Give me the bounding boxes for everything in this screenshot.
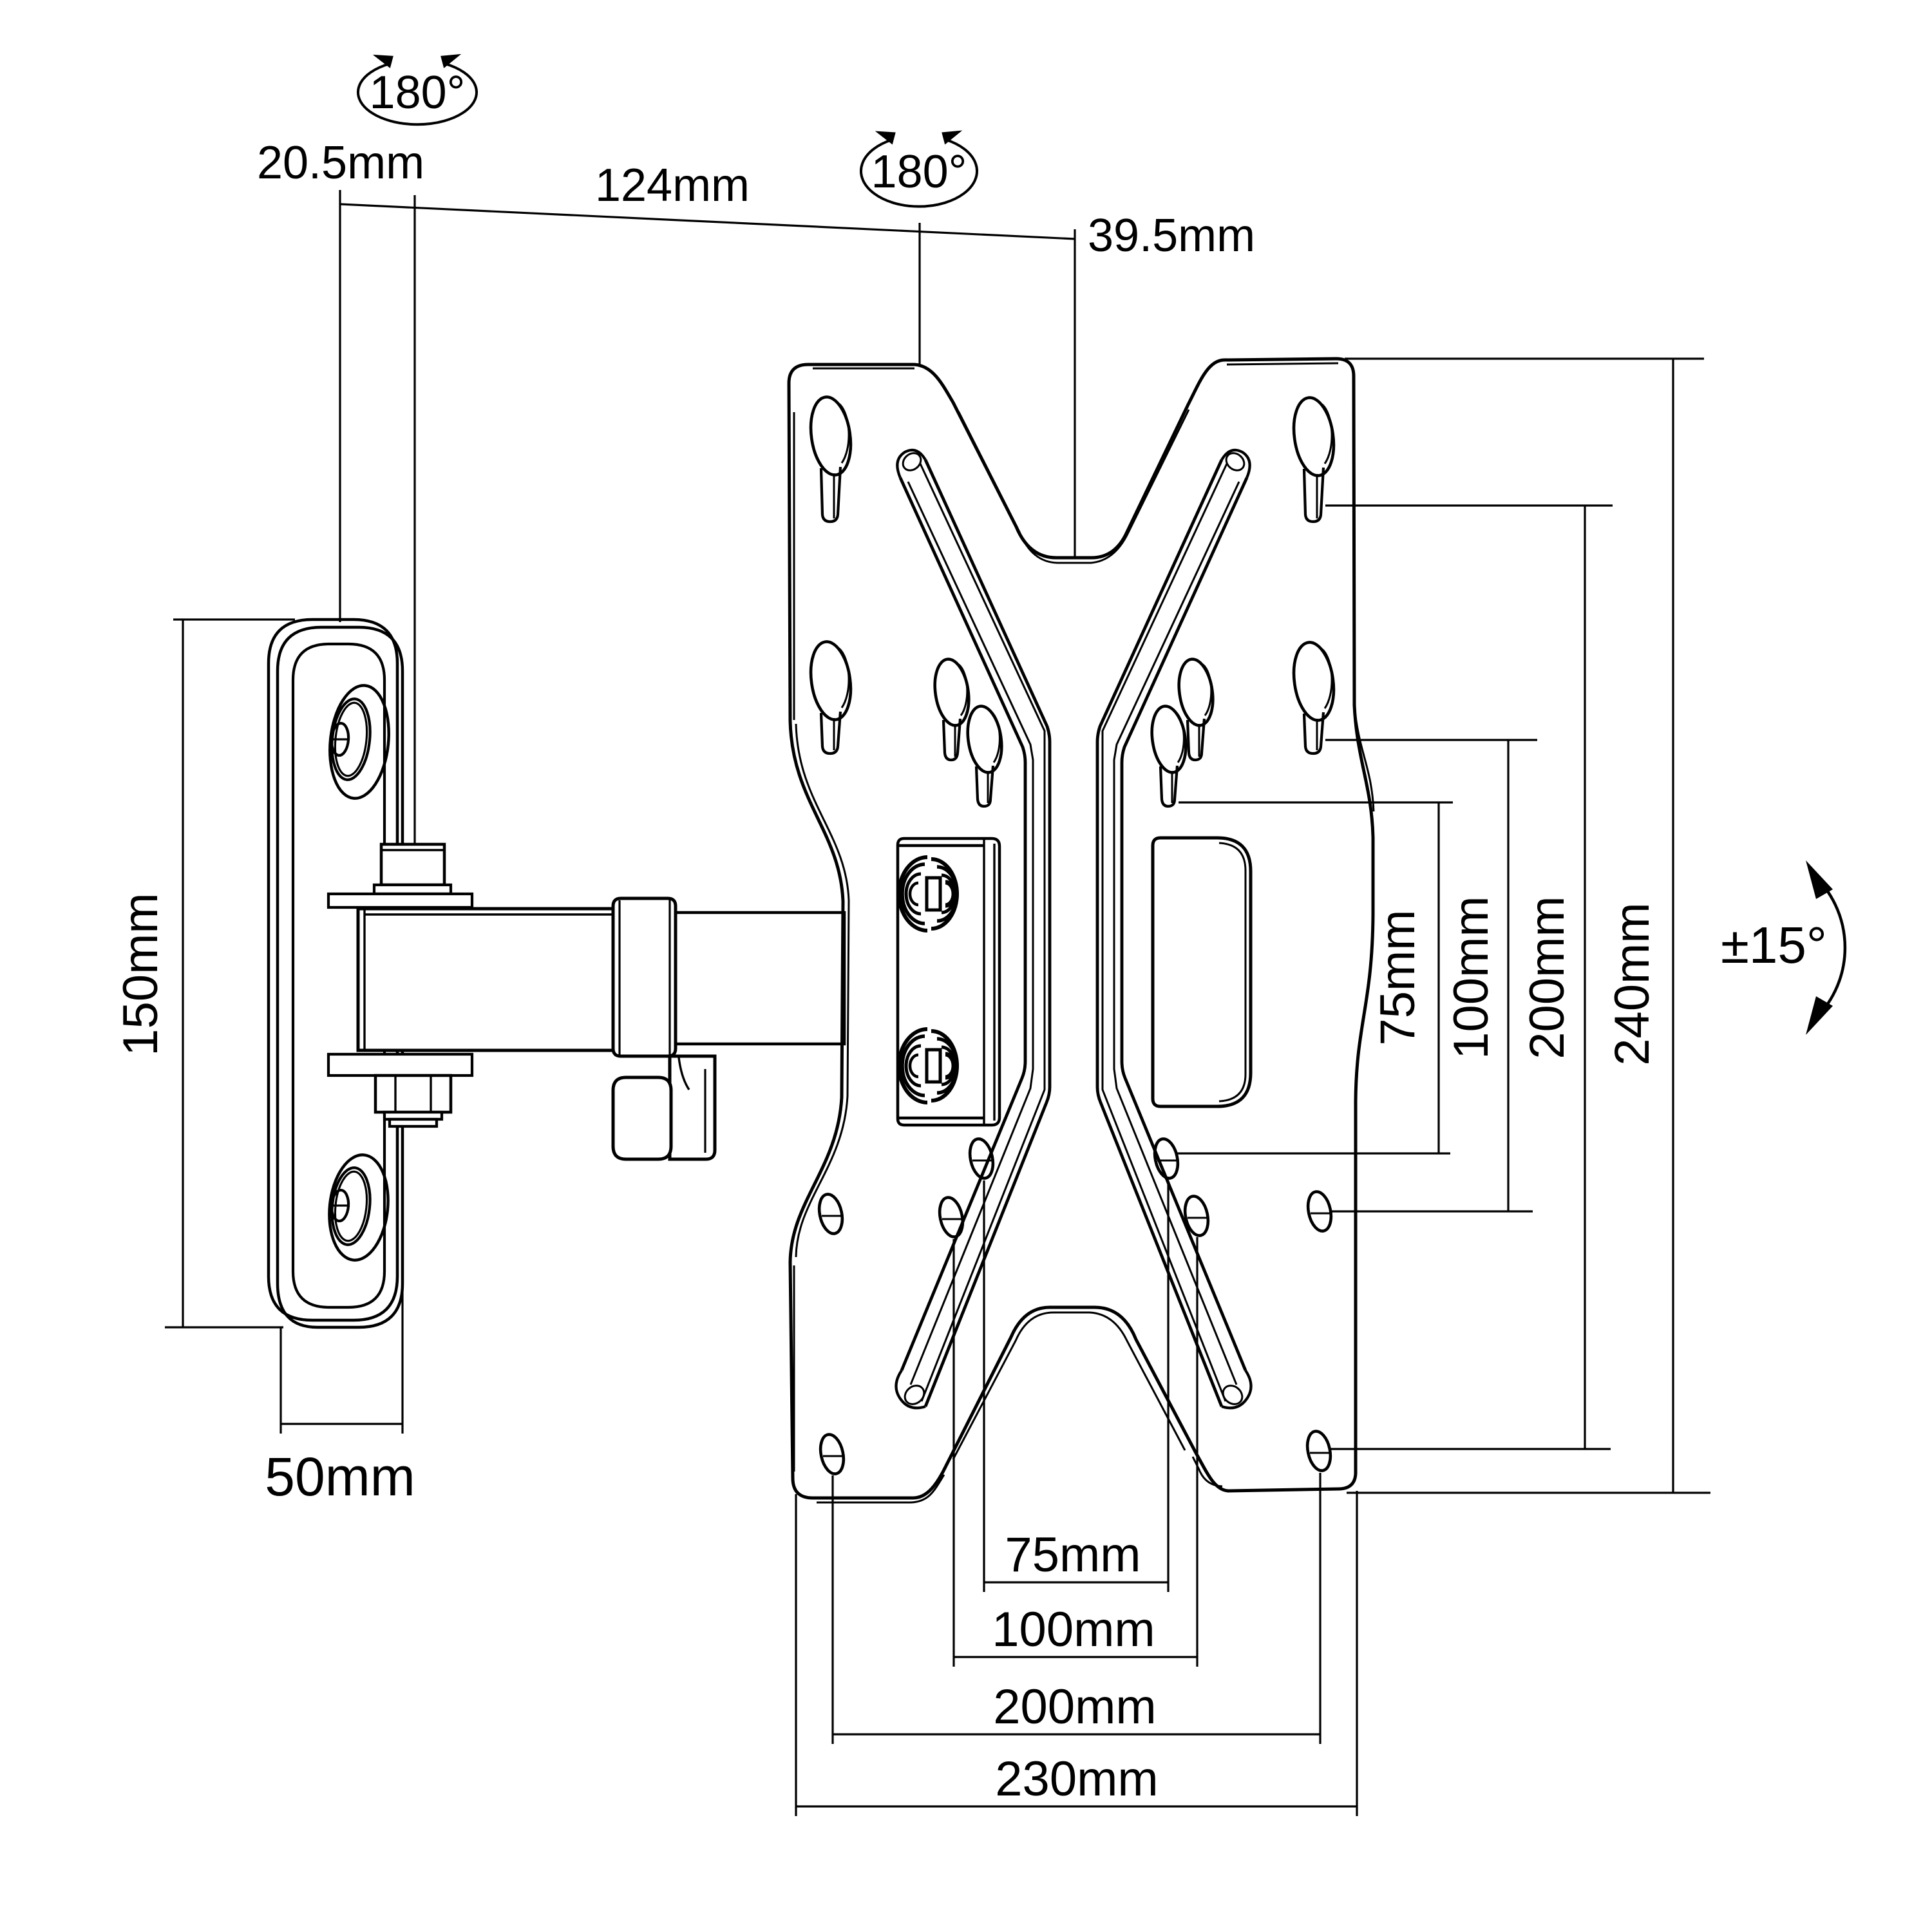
svg-text:150mm: 150mm <box>113 893 168 1056</box>
svg-text:124mm: 124mm <box>595 160 750 211</box>
svg-text:230mm: 230mm <box>995 1752 1158 1806</box>
svg-text:100mm: 100mm <box>1444 896 1499 1059</box>
svg-text:50mm: 50mm <box>265 1446 415 1507</box>
svg-text:180°: 180° <box>871 146 967 198</box>
svg-text:±15°: ±15° <box>1721 916 1827 974</box>
svg-text:180°: 180° <box>370 67 466 118</box>
svg-text:200mm: 200mm <box>1520 896 1575 1059</box>
svg-text:75mm: 75mm <box>1370 909 1425 1045</box>
svg-text:39.5mm: 39.5mm <box>1088 210 1255 261</box>
svg-text:200mm: 200mm <box>993 1680 1156 1734</box>
svg-text:100mm: 100mm <box>992 1602 1155 1657</box>
svg-text:20.5mm: 20.5mm <box>257 137 424 189</box>
svg-text:75mm: 75mm <box>1005 1528 1141 1582</box>
svg-text:240mm: 240mm <box>1605 902 1660 1065</box>
